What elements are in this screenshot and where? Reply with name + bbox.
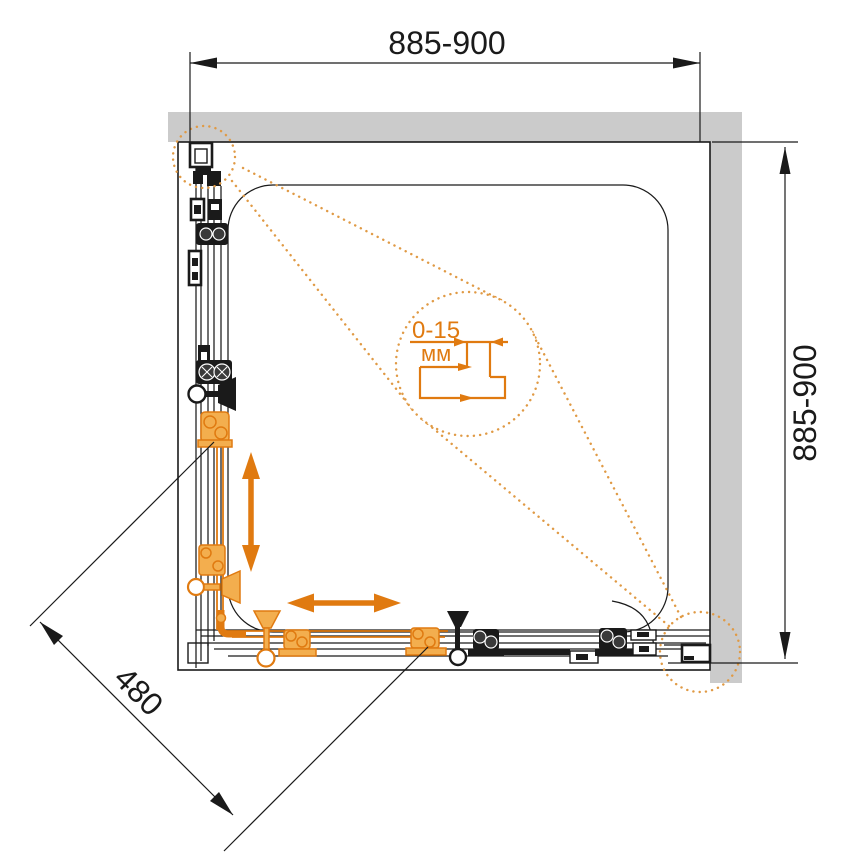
wall-profile-top-left [190,143,212,175]
dimension-top-label: 885-900 [388,25,505,61]
roller [204,416,216,428]
roller [200,228,212,240]
movement-arrow-horizontal [287,594,401,613]
leader-line [243,168,501,300]
roller [613,636,625,648]
wall-top [168,112,742,142]
roller [213,561,223,571]
detail-callout: 0-15 мм [173,126,740,692]
arrow-head-right [374,594,401,613]
roller [297,637,307,647]
dim-arrow-top [780,147,791,174]
sliding-door-hardware-orange [188,412,448,667]
handle-knob [447,611,469,627]
bottom-door-hardware-black [447,611,656,665]
roller [474,631,486,643]
dim-arrow-right [673,58,700,69]
roller [213,228,225,240]
roller [485,636,497,648]
leader-line [232,181,412,409]
roller [601,630,613,642]
movement-arrow-vertical [242,452,260,572]
handle-knob [222,571,240,603]
dimension-diagonal-label: 480 [107,660,170,723]
shower-enclosure-plan-drawing: 0-15 мм 885-900 885-900 48 [0,0,856,853]
roller [286,631,296,641]
detail-unit-label: мм [421,341,451,366]
handle-ring [188,579,204,595]
dimension-diagonal: 480 [30,442,428,851]
handle-knob [254,611,280,628]
technical-drawing-canvas: 0-15 мм 885-900 885-900 48 [0,0,856,853]
corner-post-block [188,643,208,663]
roller [217,614,226,623]
dimension-right: 885-900 [668,142,823,663]
arrow-head-down [242,545,260,572]
handle-ring [258,650,275,667]
arrow-head-up [242,452,260,479]
handle-ring [450,649,466,665]
link-bar [498,649,570,655]
handle-ring [189,386,206,403]
arrow-head-left [287,594,314,613]
roller [201,548,211,558]
dim-arrow-left [190,58,217,69]
wall-right [710,112,742,683]
detail-range-label: 0-15 [412,317,460,344]
dim-arrow-bottom [780,632,791,659]
dimension-right-label: 885-900 [787,344,823,461]
wall-profile-bottom-right [664,645,710,662]
roller [413,629,423,639]
roller [425,637,435,647]
roller [215,427,227,439]
